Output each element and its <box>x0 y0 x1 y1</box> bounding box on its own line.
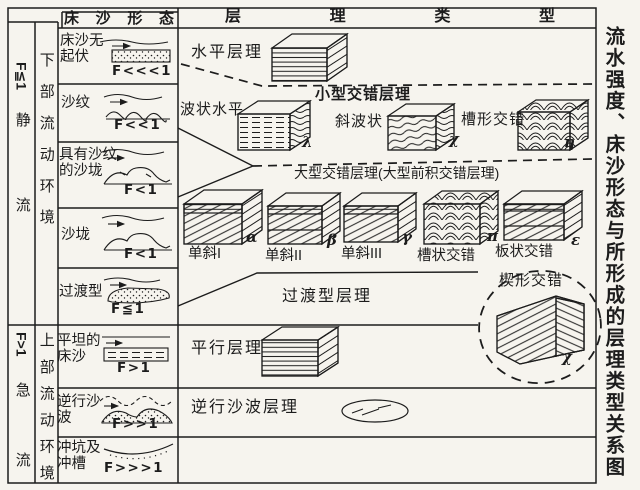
transitional-bed-sketch <box>104 278 169 303</box>
bedform-label-plane-bed: 平坦的床沙 <box>57 333 107 365</box>
upper-regime-environment: 下部流动环境 <box>37 52 54 224</box>
bedform-label-dunes-with-ripples: 具有沙纹的沙垅 <box>59 147 123 179</box>
trough-shaped-cross-label: 槽形交错 <box>461 112 525 129</box>
chute-and-pool-sketch <box>104 444 173 459</box>
antidune-bedding-sketch <box>342 400 408 422</box>
bedform-label-flat-bed: 床沙无起伏 <box>60 33 110 65</box>
large-cross-bedding-title: 大型交错层理(大型前积交错层理) <box>294 166 499 182</box>
lower-regime-environment: 上部流动环境 <box>37 332 54 480</box>
froude-dunes-with-ripples: F<1 <box>124 183 158 198</box>
lower-regime-name: 急流 <box>13 382 30 467</box>
transitional-bedding-label: 过渡型层理 <box>282 288 372 306</box>
bedform-label-antidunes: 逆行沙波 <box>57 394 107 426</box>
monocline-2-symbol: β <box>327 232 337 249</box>
monocline-1-label: 单斜I <box>188 246 221 262</box>
bedform-column-header: 床沙形态 <box>64 11 174 28</box>
monocline-3-label: 单斜III <box>341 246 382 262</box>
monocline-2-label: 单斜II <box>265 248 302 264</box>
trough-cross-label: 槽状交错 <box>417 248 475 264</box>
wavy-horizontal-label: 波状水平 <box>180 102 244 119</box>
small-cross-bedding-title: 小型交错层理 <box>315 87 411 104</box>
bedding-column-header: 层理类型 <box>225 8 555 26</box>
froude-transitional: F≦1 <box>111 302 145 317</box>
plane-bed-sketch <box>102 337 170 361</box>
dune-sketch <box>102 216 172 251</box>
wedge-cross-label: 楔形交错 <box>499 273 563 290</box>
tabular-cross-label: 板状交错 <box>495 244 553 260</box>
bedform-label-ripples: 沙纹 <box>61 95 90 111</box>
upper-regime-name: 静流 <box>13 112 30 212</box>
wedge-cross-symbol: χ <box>562 349 572 366</box>
lower-regime-froude: F>1 <box>13 332 29 357</box>
froude-flat-bed: F<<<1 <box>112 64 172 79</box>
bedform-label-chute-and-pool: 冲坑及冲槽 <box>57 440 107 472</box>
wavy-horizontal-block <box>238 101 310 150</box>
tabular-cross-symbol: ε <box>571 232 580 249</box>
flat-bed-sketch <box>100 40 170 62</box>
froude-ripples: F<<1 <box>114 118 161 133</box>
trough-shaped-cross-block <box>518 100 588 150</box>
inclined-wavy-symbol: χ <box>449 131 459 148</box>
upper-regime-froude: F≦1 <box>13 62 29 90</box>
froude-dunes: F<1 <box>124 247 158 262</box>
inclined-wavy-block <box>388 104 454 150</box>
horizontal-bedding-block <box>272 34 347 81</box>
diagram-page: 床沙形态 层理类型 流水强度、床沙形态与所形成的层理类型关系图 F≦1 静流 下… <box>0 0 640 490</box>
trough-cross-symbol: π <box>487 228 498 245</box>
inclined-wavy-label: 斜波状 <box>335 114 383 131</box>
bedform-label-transitional: 过渡型 <box>59 284 103 300</box>
figure-title-vertical: 流水强度、床沙形态与所形成的层理类型关系图 <box>601 26 623 476</box>
horizontal-bedding-label: 水平层理 <box>191 44 263 62</box>
monocline-1-symbol: α <box>246 229 258 246</box>
bedform-label-dunes: 沙垅 <box>61 227 90 243</box>
froude-plane-bed: F>1 <box>117 361 151 376</box>
parallel-bedding-block <box>262 327 338 376</box>
wavy-horizontal-symbol: λ <box>302 134 313 151</box>
froude-antidunes: F>>1 <box>112 417 159 432</box>
antidune-bedding-label: 逆行沙波层理 <box>191 399 299 417</box>
trough-shaped-cross-symbol: η <box>564 134 575 151</box>
parallel-bedding-label: 平行层理 <box>191 340 263 358</box>
monocline-3-symbol: γ <box>402 229 412 246</box>
froude-chute-and-pool: F>>>1 <box>104 461 164 476</box>
